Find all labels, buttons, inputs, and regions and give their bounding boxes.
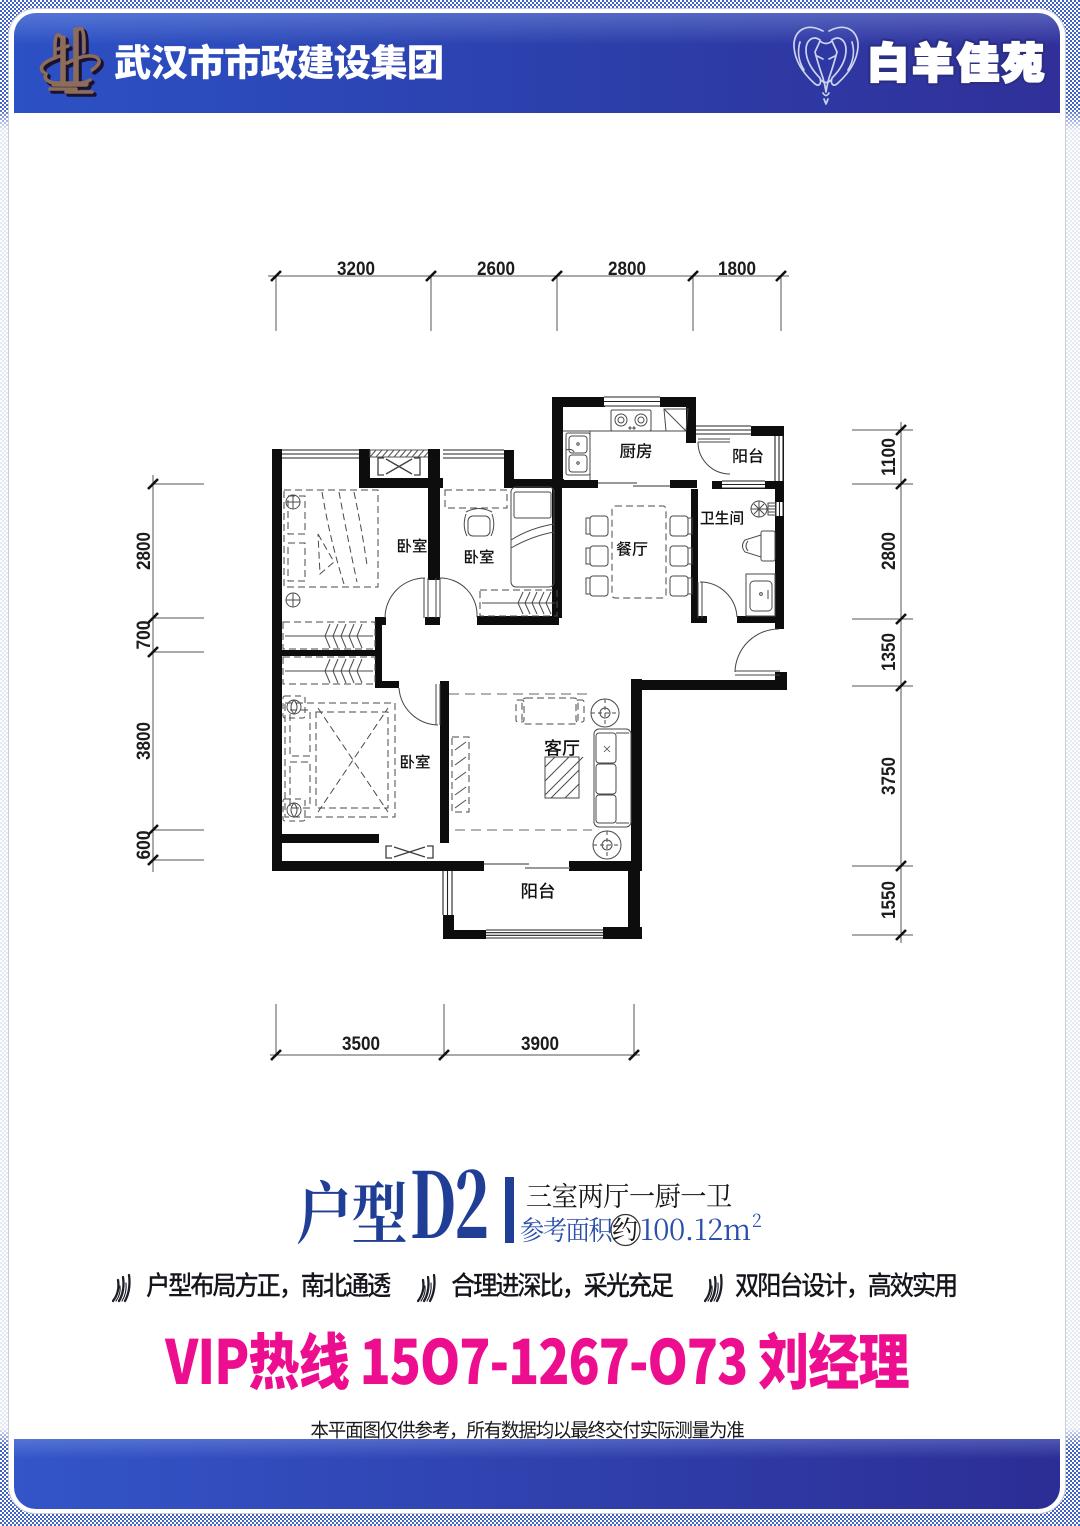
svg-text:2800: 2800	[134, 532, 155, 570]
svg-text:1100: 1100	[879, 438, 900, 476]
svg-text:1550: 1550	[879, 881, 900, 919]
svg-text:3800: 3800	[134, 722, 155, 760]
svg-text:2800: 2800	[608, 259, 646, 280]
svg-text:3500: 3500	[342, 1034, 380, 1055]
svg-text:2600: 2600	[477, 259, 515, 280]
svg-text:3750: 3750	[879, 757, 900, 795]
svg-text:600: 600	[134, 831, 155, 860]
svg-text:3900: 3900	[521, 1034, 559, 1055]
svg-text:3200: 3200	[337, 259, 375, 280]
svg-text:1350: 1350	[879, 633, 900, 671]
svg-text:1800: 1800	[718, 259, 756, 280]
svg-text:700: 700	[134, 621, 155, 650]
svg-text:2800: 2800	[879, 532, 900, 570]
